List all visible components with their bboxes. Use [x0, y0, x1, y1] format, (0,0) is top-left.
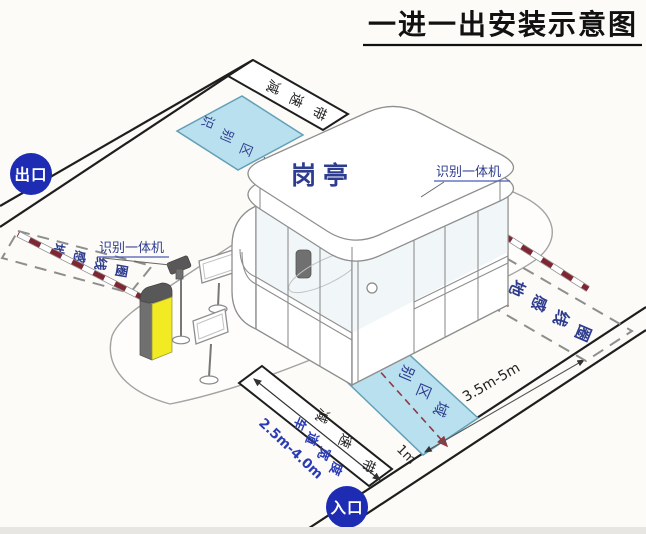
entrance-badge-label: 入口 [330, 499, 363, 517]
reader-right-label: 识别一体机 [436, 165, 501, 180]
diagram-title-group: 一进一出安装示意图 [363, 8, 642, 45]
exit-badge: 出口 [10, 153, 52, 195]
sign-board-2-base [200, 376, 218, 384]
reader-left-label: 识别一体机 [99, 241, 164, 256]
entrance-badge: 入口 [326, 486, 368, 528]
diagram-title: 一进一出安装示意图 [368, 8, 638, 41]
exit-badge-label: 出口 [14, 165, 47, 184]
camera-left-base [173, 336, 190, 344]
barrier-left-side [140, 301, 152, 360]
booth-door-handle [367, 283, 377, 293]
sign-board-1-pole [218, 283, 219, 307]
barrier-left-front [152, 297, 172, 360]
booth-interior-chair [296, 250, 311, 278]
installation-diagram: 减速带 识别区域 减速带 车道宽度 2.5m-4.0m 识别区域 1m 3.5m… [0, 0, 646, 534]
booth-label: 岗亭 [291, 161, 355, 190]
ground-coil-left-label-char-3: 圈 [112, 263, 129, 278]
camera-left-bracket [176, 269, 183, 279]
diagram-canvas: 减速带 识别区域 减速带 车道宽度 2.5m-4.0m 识别区域 1m 3.5m… [0, 0, 646, 534]
bottom-border-strip [0, 527, 646, 534]
